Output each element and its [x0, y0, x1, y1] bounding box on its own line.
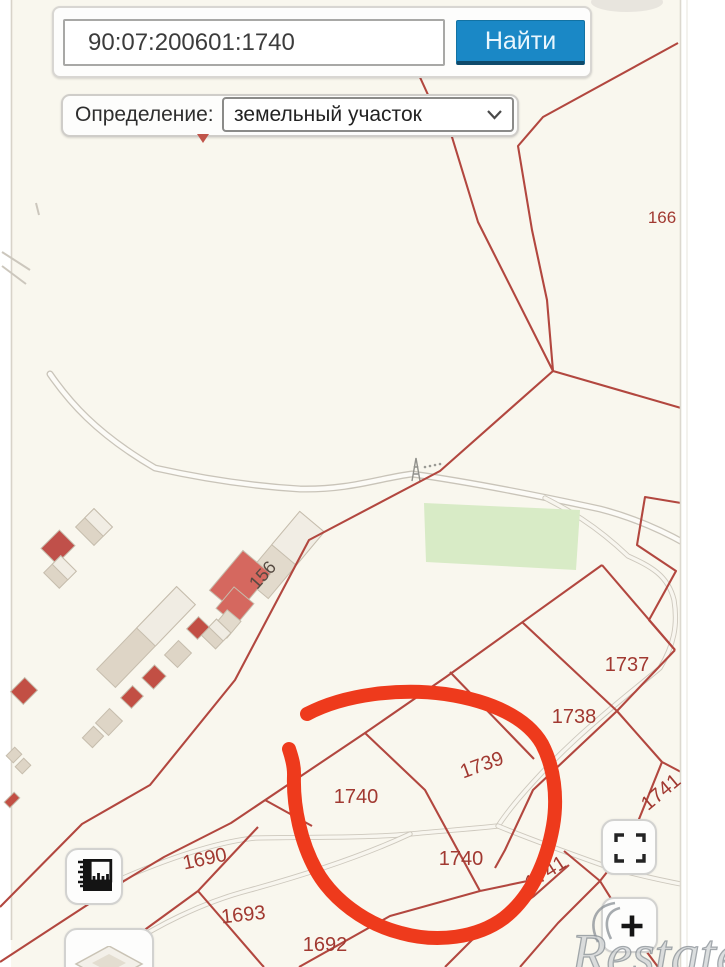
svg-text:1740: 1740	[439, 848, 484, 870]
svg-text:1692: 1692	[303, 934, 348, 956]
svg-text:1693: 1693	[220, 902, 267, 929]
svg-text:1738: 1738	[552, 706, 597, 728]
svg-text:1740: 1740	[334, 786, 379, 808]
svg-text:1737: 1737	[605, 654, 650, 676]
svg-text:166: 166	[648, 208, 676, 227]
svg-text:Restate: Restate	[570, 922, 725, 967]
